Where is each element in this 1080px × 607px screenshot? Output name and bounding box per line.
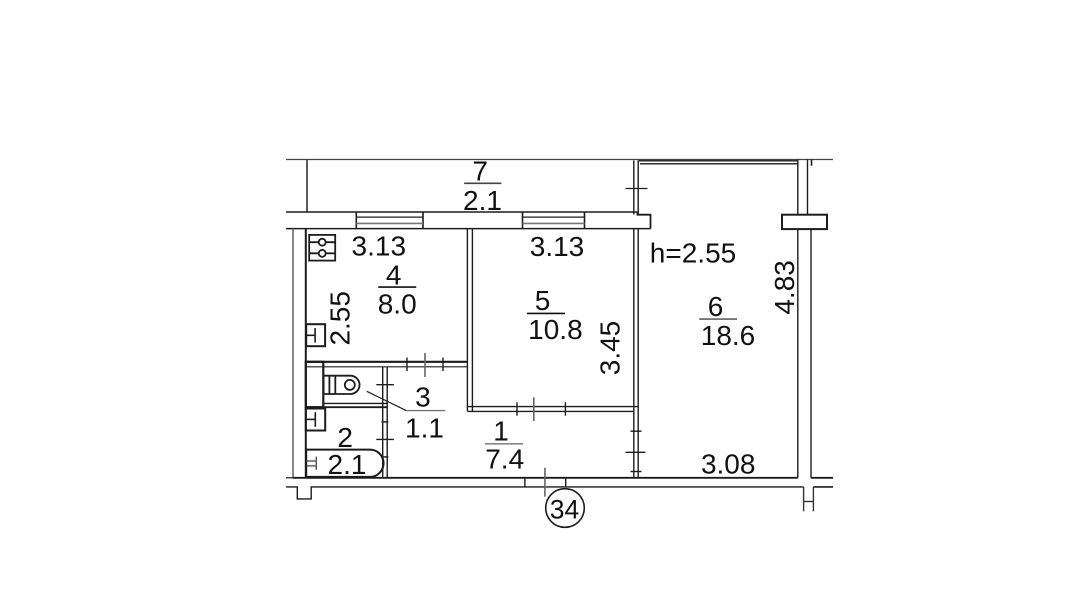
svg-text:6: 6 (708, 291, 724, 322)
svg-text:2.1: 2.1 (463, 185, 502, 216)
svg-text:4: 4 (386, 259, 402, 290)
svg-text:7.4: 7.4 (485, 444, 524, 475)
svg-text:3: 3 (415, 382, 431, 413)
svg-text:3.08: 3.08 (701, 449, 756, 480)
svg-text:5: 5 (535, 285, 551, 316)
svg-text:3.13: 3.13 (530, 231, 585, 262)
svg-text:18.6: 18.6 (701, 320, 756, 351)
svg-text:8.0: 8.0 (378, 288, 417, 319)
svg-text:10.8: 10.8 (528, 314, 583, 345)
svg-text:h=2.55: h=2.55 (650, 238, 736, 269)
svg-text:4.83: 4.83 (769, 260, 800, 315)
svg-text:34: 34 (550, 494, 579, 524)
svg-text:3.13: 3.13 (352, 231, 407, 262)
svg-text:7: 7 (472, 156, 488, 187)
svg-text:2.1: 2.1 (328, 449, 367, 480)
svg-text:3.45: 3.45 (594, 321, 625, 376)
svg-text:1.1: 1.1 (405, 413, 444, 444)
svg-text:1: 1 (493, 415, 509, 446)
svg-text:2.55: 2.55 (324, 291, 355, 346)
